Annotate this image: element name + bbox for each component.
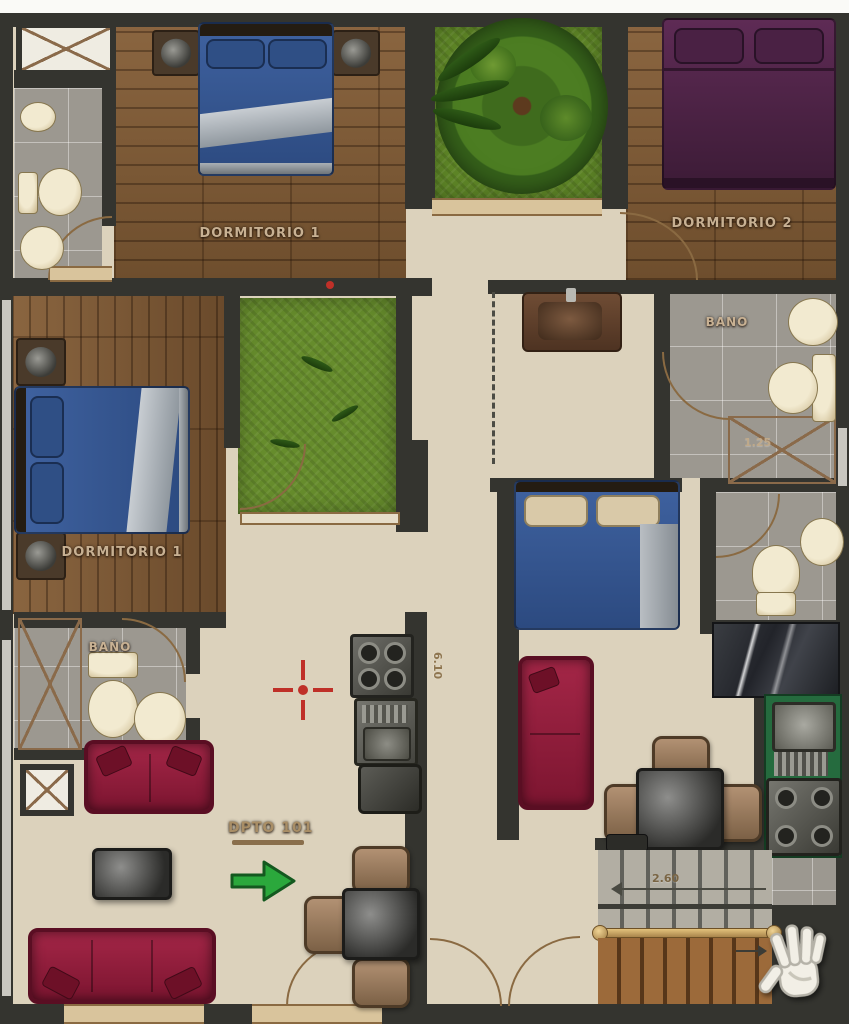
wall-bath2-left bbox=[654, 292, 670, 478]
toilet-tank bbox=[18, 172, 38, 214]
closet-living-left bbox=[20, 764, 74, 816]
red-dot-marker bbox=[326, 281, 334, 289]
crosshair-bar bbox=[273, 688, 293, 692]
room-label-bath-left: BAÑO bbox=[80, 640, 140, 654]
bed-footboard bbox=[664, 178, 834, 188]
toilet-base bbox=[756, 592, 796, 616]
nightstand bbox=[332, 30, 380, 76]
burner bbox=[384, 642, 406, 664]
bed-pillow bbox=[30, 462, 64, 524]
hand-cursor-icon bbox=[751, 918, 842, 1018]
bed-pillow bbox=[674, 28, 744, 64]
shower-bottom-left bbox=[18, 618, 82, 750]
chair bbox=[352, 846, 410, 894]
nightstand bbox=[16, 338, 66, 386]
dimension-shower: 1.25 bbox=[744, 436, 771, 449]
bed-footboard bbox=[179, 388, 188, 532]
loveseat-left bbox=[84, 740, 214, 814]
toilet-bowl bbox=[38, 168, 82, 216]
window-left-strip bbox=[2, 300, 11, 610]
toilet-bowl bbox=[768, 362, 818, 414]
marble-counter bbox=[712, 622, 840, 698]
wall-patio-mid-right bbox=[396, 296, 412, 454]
dimension-corridor: 6.10 bbox=[431, 652, 444, 679]
door-arc-corridor bbox=[430, 938, 502, 1006]
closet-top-left bbox=[16, 22, 116, 76]
projection-dashed-line bbox=[492, 292, 495, 464]
toilet-tank bbox=[88, 652, 138, 678]
stove bbox=[766, 778, 842, 856]
window-patio-mid bbox=[240, 512, 400, 525]
bed-pillow bbox=[596, 495, 660, 527]
burner bbox=[384, 668, 406, 690]
sofa-pillow bbox=[527, 666, 560, 694]
dining-table bbox=[636, 768, 724, 850]
toilet-bowl bbox=[752, 545, 800, 599]
coffee-table bbox=[92, 848, 172, 900]
bed-pillow bbox=[268, 39, 327, 69]
room-label-bath-right: BANO bbox=[697, 315, 757, 329]
room-label-bedroom-mid-left: DORMITORIO 1 bbox=[42, 545, 202, 560]
page-margin bbox=[0, 0, 849, 13]
bed-center-right bbox=[514, 480, 680, 630]
room-label-bedroom-top-right: DORMITORIO 2 bbox=[652, 216, 812, 231]
sink bbox=[134, 692, 186, 746]
bed-folded-blanket bbox=[126, 386, 182, 534]
bed-top-right bbox=[662, 18, 836, 190]
stairs-upper bbox=[598, 850, 772, 934]
stove bbox=[350, 634, 414, 698]
burner bbox=[775, 787, 797, 809]
bed-footboard bbox=[200, 163, 332, 174]
sofa-pillow bbox=[165, 745, 203, 777]
cushion-seam bbox=[151, 940, 153, 992]
sofa-right bbox=[518, 656, 594, 810]
window-left-strip-2 bbox=[2, 640, 11, 996]
bed-headboard bbox=[200, 24, 332, 36]
crosshair-center bbox=[298, 685, 308, 695]
burner bbox=[775, 825, 797, 847]
bed-headboard bbox=[16, 388, 26, 532]
bidet bbox=[20, 226, 64, 270]
wall-bath3-left bbox=[700, 478, 716, 634]
kitchen-sink bbox=[354, 698, 418, 766]
bed-pillow bbox=[30, 396, 64, 458]
cushion-seam bbox=[149, 754, 151, 802]
wall-bath4-right-a bbox=[186, 612, 200, 674]
red-crosshair-marker bbox=[273, 660, 333, 720]
green-arrow-icon bbox=[230, 858, 296, 904]
room-label-bedroom-top-left: DORMITORIO 1 bbox=[180, 226, 340, 241]
burner bbox=[358, 642, 380, 664]
bed-mid-left bbox=[14, 386, 190, 534]
unit-label: DPTO 101 bbox=[228, 820, 308, 836]
bed-pillow bbox=[754, 28, 824, 64]
chair bbox=[352, 958, 410, 1008]
bed-folded-blanket bbox=[198, 97, 334, 149]
dimension-line-stairs bbox=[614, 888, 766, 890]
shower-top-right bbox=[728, 416, 836, 484]
stair-landing-floor bbox=[772, 850, 836, 912]
bed-top-left bbox=[198, 22, 334, 176]
crosshair-bar bbox=[301, 660, 305, 680]
burner bbox=[811, 825, 833, 847]
burner bbox=[811, 787, 833, 809]
door-sill-bottom-left bbox=[64, 1004, 204, 1024]
kitchen-counter bbox=[358, 764, 422, 814]
door-arc-entry-right bbox=[508, 936, 580, 1006]
stair-railing bbox=[598, 928, 774, 938]
wall-patio-left bbox=[405, 13, 435, 209]
dimension-stairs: 2.60 bbox=[652, 872, 679, 885]
sofa-left bbox=[28, 928, 216, 1004]
vanity-basin bbox=[538, 302, 602, 340]
toilet-bowl bbox=[88, 680, 138, 738]
stair-stringer bbox=[598, 904, 772, 909]
bed-folded-blanket bbox=[640, 524, 678, 628]
bed-seam bbox=[664, 68, 834, 71]
cushion-seam bbox=[530, 733, 580, 735]
dining-table bbox=[342, 888, 420, 960]
burner bbox=[358, 668, 380, 690]
door-sill-top bbox=[50, 266, 112, 282]
wall-column-mid bbox=[396, 440, 428, 532]
tree-foliage-blob-2 bbox=[540, 95, 592, 141]
bed-headboard bbox=[516, 482, 678, 492]
sofa-pillow bbox=[41, 965, 81, 1000]
door-sill-patio bbox=[432, 198, 602, 216]
crosshair-bar bbox=[301, 700, 305, 720]
sink-basin bbox=[363, 727, 411, 761]
dimension-arrowhead-left bbox=[604, 882, 622, 896]
window-right-strip bbox=[838, 428, 847, 486]
bed-pillow bbox=[524, 495, 588, 527]
wall-outer-right bbox=[836, 13, 849, 1024]
wall-bedroom-mid-right bbox=[224, 296, 240, 448]
sofa-pillow bbox=[163, 966, 203, 1001]
unit-label-underline bbox=[232, 840, 304, 845]
faucet bbox=[566, 288, 576, 302]
crosshair-bar bbox=[313, 688, 333, 692]
sink bbox=[800, 518, 844, 566]
bed-pillow bbox=[206, 39, 265, 69]
sink-basin bbox=[772, 702, 836, 752]
nightstand bbox=[152, 30, 200, 76]
floor-plan: DORMITORIO 1 DORMITORIO 2 DORMITORIO 1 B… bbox=[0, 0, 849, 1024]
vanity-counter bbox=[522, 292, 622, 352]
sofa-pillow bbox=[95, 744, 133, 777]
sink bbox=[788, 298, 838, 346]
drainboard bbox=[774, 752, 828, 776]
sink bbox=[20, 102, 56, 132]
wall-bath1-right bbox=[102, 88, 116, 226]
stairs-lower bbox=[598, 938, 772, 1004]
cushion-seam bbox=[91, 940, 93, 992]
drainboard bbox=[362, 705, 408, 723]
